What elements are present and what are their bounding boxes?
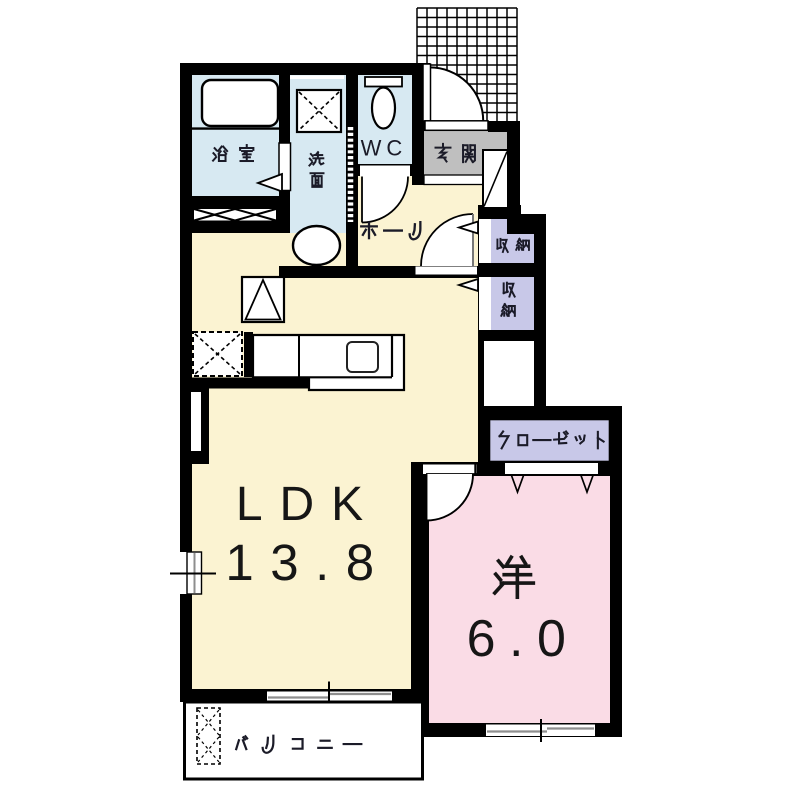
svg-text:WC: WC: [361, 136, 408, 161]
svg-text:6.0: 6.0: [467, 610, 580, 668]
svg-text:13.8: 13.8: [225, 534, 390, 591]
svg-text:LDK: LDK: [236, 478, 380, 531]
